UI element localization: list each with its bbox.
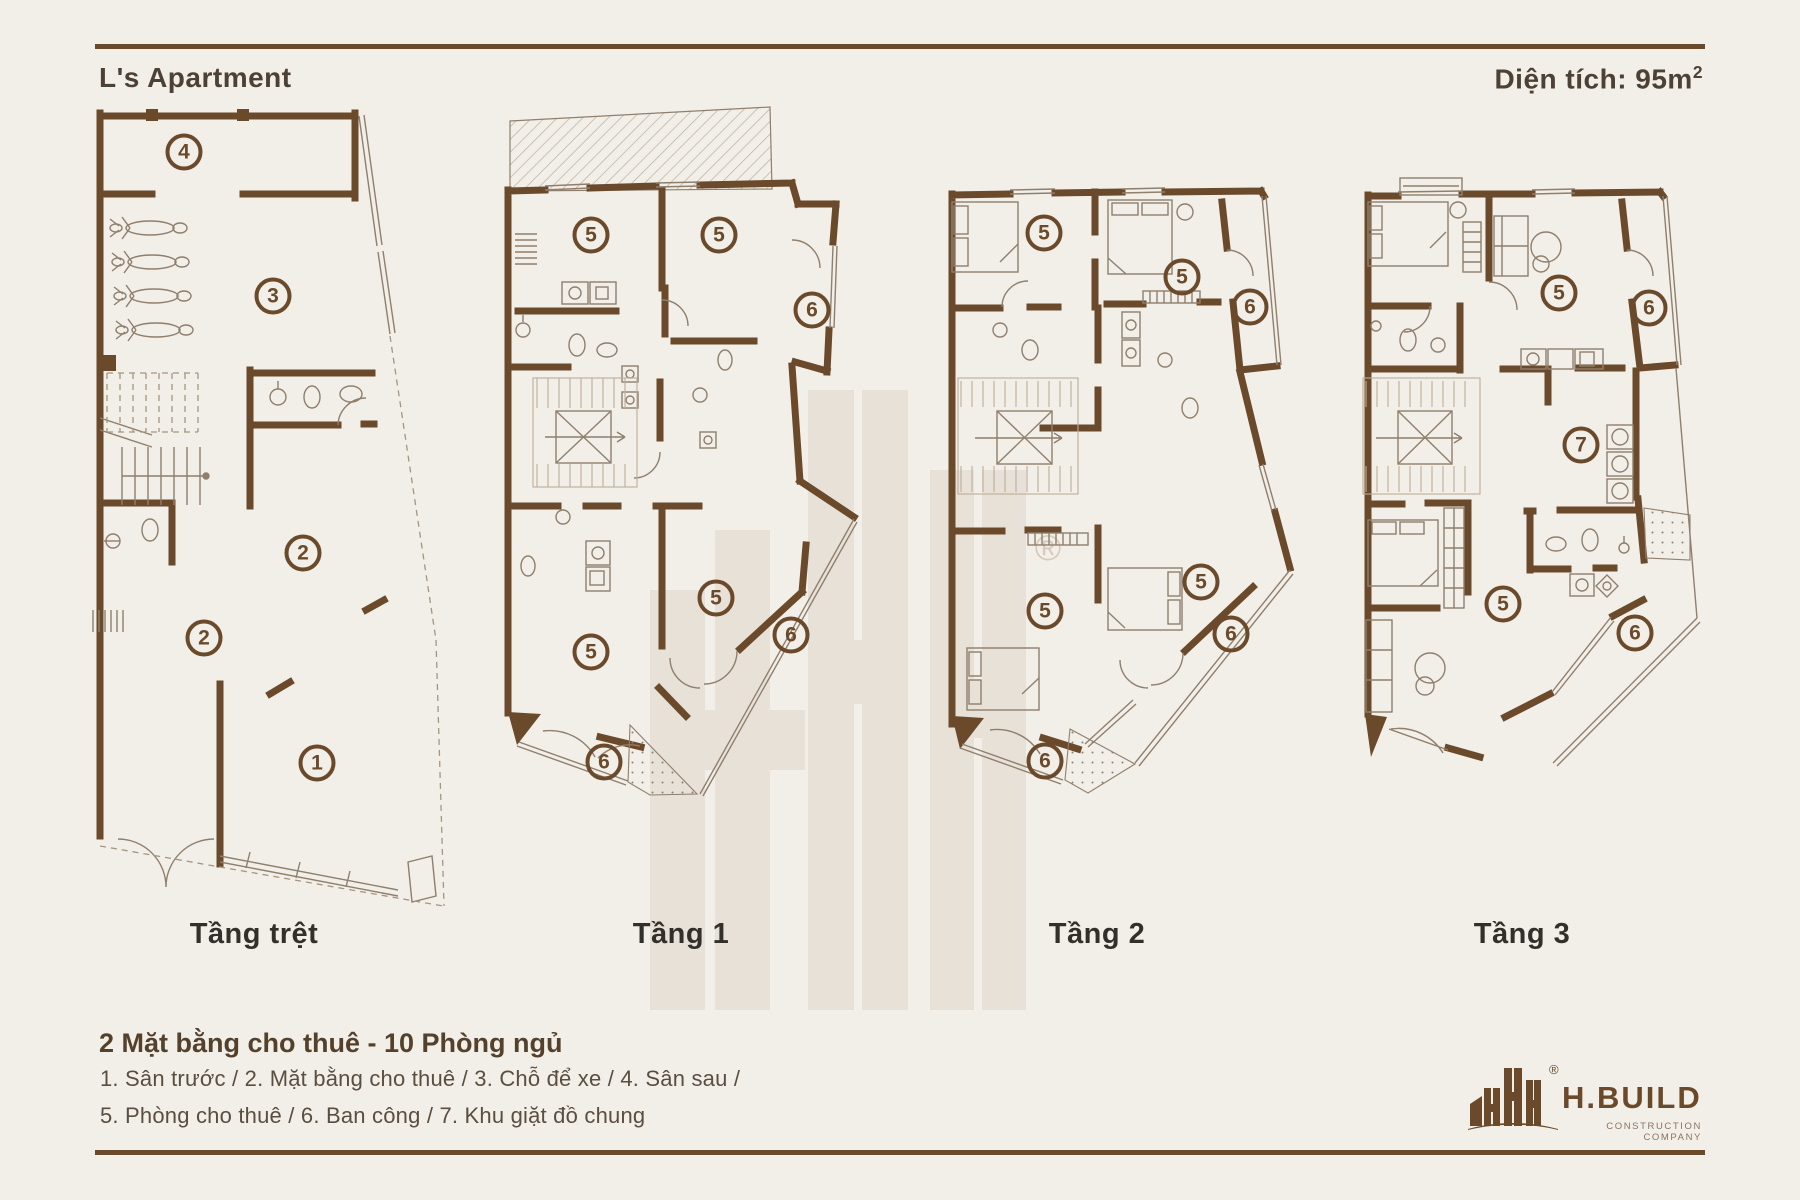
room-marker-7: 7 <box>1563 427 1600 464</box>
room-marker-5: 5 <box>1183 564 1220 601</box>
room-marker-6: 6 <box>773 617 810 654</box>
wall-corner <box>952 716 984 749</box>
fixtures <box>952 188 1293 784</box>
page-title: L's Apartment <box>99 62 292 94</box>
fixtures <box>93 115 436 902</box>
stairs <box>1363 378 1480 494</box>
room-marker-6: 6 <box>794 292 831 329</box>
legend-line-1: 1. Sân trước / 2. Mặt bằng cho thuê / 3.… <box>100 1066 740 1092</box>
wall-corner <box>1365 714 1387 757</box>
room-marker-6: 6 <box>1027 743 1064 780</box>
room-marker-4: 4 <box>166 134 203 171</box>
room-marker-5: 5 <box>1027 593 1064 630</box>
room-marker-6: 6 <box>1232 289 1269 326</box>
room-marker-5: 5 <box>698 580 735 617</box>
room-marker-6: 6 <box>1213 616 1250 653</box>
room-marker-5: 5 <box>1164 259 1201 296</box>
presentation-board: L's Apartment Diện tích: 95m2 ® <box>0 0 1800 1200</box>
walls <box>100 113 384 864</box>
room-marker-3: 3 <box>255 278 292 315</box>
room-marker-5: 5 <box>1541 275 1578 312</box>
summary-heading: 2 Mặt bằng cho thuê - 10 Phòng ngủ <box>99 1028 563 1059</box>
floorplan-tang-1 <box>505 100 880 800</box>
balcony-floor-dots <box>628 725 697 795</box>
floorplan-tang-3 <box>1363 170 1700 800</box>
room-marker-6: 6 <box>1617 615 1654 652</box>
bottom-divider <box>95 1150 1705 1155</box>
floor-label-floor1: Tầng 1 <box>633 918 729 951</box>
area-value: Diện tích: 95m2 <box>1494 62 1703 95</box>
parked-motorbikes <box>110 217 193 341</box>
room-marker-5: 5 <box>1026 215 1063 252</box>
floorplan-tang-tret <box>90 95 445 910</box>
balcony-floor-dots <box>1644 508 1690 560</box>
room-marker-5: 5 <box>1485 586 1522 623</box>
logo-registered-icon: ® <box>1549 1062 1559 1077</box>
room-marker-6: 6 <box>1631 290 1668 327</box>
roof-canopy-hatch <box>510 107 772 191</box>
room-marker-5: 5 <box>573 217 610 254</box>
floor-label-ground: Tầng trệt <box>190 918 319 951</box>
legend-line-2: 5. Phòng cho thuê / 6. Ban công / 7. Khu… <box>100 1103 645 1129</box>
floor-label-floor2: Tầng 2 <box>1049 918 1145 951</box>
walls <box>508 183 854 747</box>
room-marker-1: 1 <box>299 745 336 782</box>
walls <box>1368 192 1675 757</box>
floorplan-tang-2 <box>945 170 1295 800</box>
logo-tagline: CONSTRUCTION COMPANY <box>1560 1121 1702 1143</box>
room-marker-2: 2 <box>186 620 223 657</box>
room-marker-2: 2 <box>285 535 322 572</box>
fixtures <box>1366 178 1700 766</box>
floor-label-floor3: Tầng 3 <box>1474 918 1570 951</box>
logo-brand: H.BUILD <box>1562 1080 1704 1116</box>
room-marker-5: 5 <box>573 634 610 671</box>
room-marker-5: 5 <box>701 217 738 254</box>
top-divider <box>95 44 1705 49</box>
room-marker-6: 6 <box>586 744 623 781</box>
balcony-floor-dots <box>1065 729 1135 793</box>
wall-corner <box>508 712 541 745</box>
hbuild-logo-icon <box>1468 1062 1560 1130</box>
